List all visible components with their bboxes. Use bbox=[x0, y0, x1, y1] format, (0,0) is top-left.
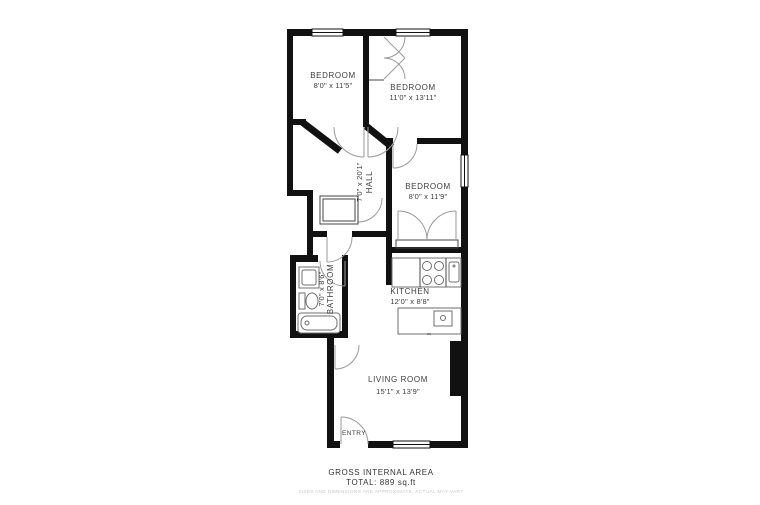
hall-name: HALL bbox=[365, 171, 374, 193]
wall-hall-cross-b bbox=[352, 231, 386, 237]
bedroom1-dims: 8'0" x 11'5" bbox=[314, 81, 353, 90]
label-bedroom1: BEDROOM 8'0" x 11'5" bbox=[310, 71, 356, 90]
disclaimer-text: SIZES AND DIMENSIONS ARE APPROXIMATE, AC… bbox=[298, 489, 464, 495]
label-bedroom2: BEDROOM 11'0" x 13'11" bbox=[390, 83, 437, 102]
kitchen-sink bbox=[449, 262, 459, 282]
bathroom-dims: 7'0" x 8'6" bbox=[317, 271, 326, 306]
window-bedroom3-right bbox=[461, 155, 468, 187]
door-hall-cross bbox=[327, 237, 352, 262]
wall-right bbox=[461, 29, 468, 448]
floor-plan-page: BEDROOM 8'0" x 11'5" BEDROOM 11'0" x 13'… bbox=[0, 0, 760, 505]
exterior-walls bbox=[287, 29, 468, 448]
total-area-value: TOTAL: 889 sq.ft bbox=[346, 478, 416, 487]
entry-label: ENTRY bbox=[342, 430, 366, 437]
bedroom2-dims: 11'0" x 13'11" bbox=[390, 93, 437, 102]
wall-diagonal-left bbox=[302, 122, 340, 151]
wall-bedroom1-2-divider bbox=[363, 29, 369, 127]
closet-hall bbox=[320, 196, 358, 224]
label-livingroom: LIVING ROOM 15'1" x 13'9" bbox=[368, 375, 428, 396]
closet-bedroom3 bbox=[396, 211, 458, 248]
wall-bathroom-left bbox=[290, 255, 296, 338]
door-livingroom bbox=[335, 345, 359, 369]
wall-diagonal-right bbox=[366, 126, 392, 147]
window-bedroom2-top bbox=[396, 29, 430, 36]
wall-bedroom3-top-b bbox=[417, 138, 462, 144]
bedroom2-name: BEDROOM bbox=[390, 83, 436, 92]
kitchen-name: KITCHEN bbox=[390, 287, 429, 296]
bedroom3-name: BEDROOM bbox=[405, 182, 451, 191]
hall-dims: 7'0" x 20'1" bbox=[355, 162, 364, 201]
entry-door-gap bbox=[340, 441, 368, 448]
wall-bedroom3-west bbox=[386, 144, 392, 285]
label-kitchen: KITCHEN 12'0" x 8'8" bbox=[390, 287, 429, 306]
bedroom1-name: BEDROOM bbox=[310, 71, 356, 80]
window-livingroom-bottom bbox=[393, 441, 430, 448]
bathroom-name: BATHROOM bbox=[326, 264, 335, 314]
wall-left-upper bbox=[287, 29, 293, 196]
door-bedroom3 bbox=[393, 144, 417, 168]
wall-hall-cross-a bbox=[313, 231, 327, 237]
closet-bedroom2 bbox=[369, 37, 405, 80]
kitchen-fixtures bbox=[392, 258, 461, 334]
toilet bbox=[299, 293, 318, 309]
floor-plan-drawing: BEDROOM 8'0" x 11'5" BEDROOM 11'0" x 13'… bbox=[0, 0, 760, 505]
label-hall: HALL 7'0" x 20'1" bbox=[355, 162, 374, 201]
kitchen-island bbox=[398, 308, 461, 334]
chimney-breast bbox=[450, 341, 461, 396]
wall-bathroom-top bbox=[290, 255, 318, 262]
bedroom3-dims: 8'0" x 11'9" bbox=[409, 192, 448, 201]
wall-hall-left bbox=[307, 190, 313, 261]
window-bedroom1-top bbox=[312, 29, 343, 36]
livingroom-dims: 15'1" x 13'9" bbox=[376, 387, 420, 396]
bathroom-sink bbox=[299, 267, 319, 288]
label-bedroom3: BEDROOM 8'0" x 11'9" bbox=[405, 182, 451, 201]
livingroom-name: LIVING ROOM bbox=[368, 375, 428, 384]
kitchen-dims: 12'0" x 8'8" bbox=[390, 297, 429, 306]
wall-livingroom-left bbox=[327, 334, 334, 441]
bathtub bbox=[298, 313, 340, 333]
gross-internal-area-label: GROSS INTERNAL AREA bbox=[328, 468, 433, 477]
footer: GROSS INTERNAL AREA TOTAL: 889 sq.ft SIZ… bbox=[298, 468, 464, 495]
label-bathroom: BATHROOM 7'0" x 8'6" bbox=[317, 264, 335, 314]
